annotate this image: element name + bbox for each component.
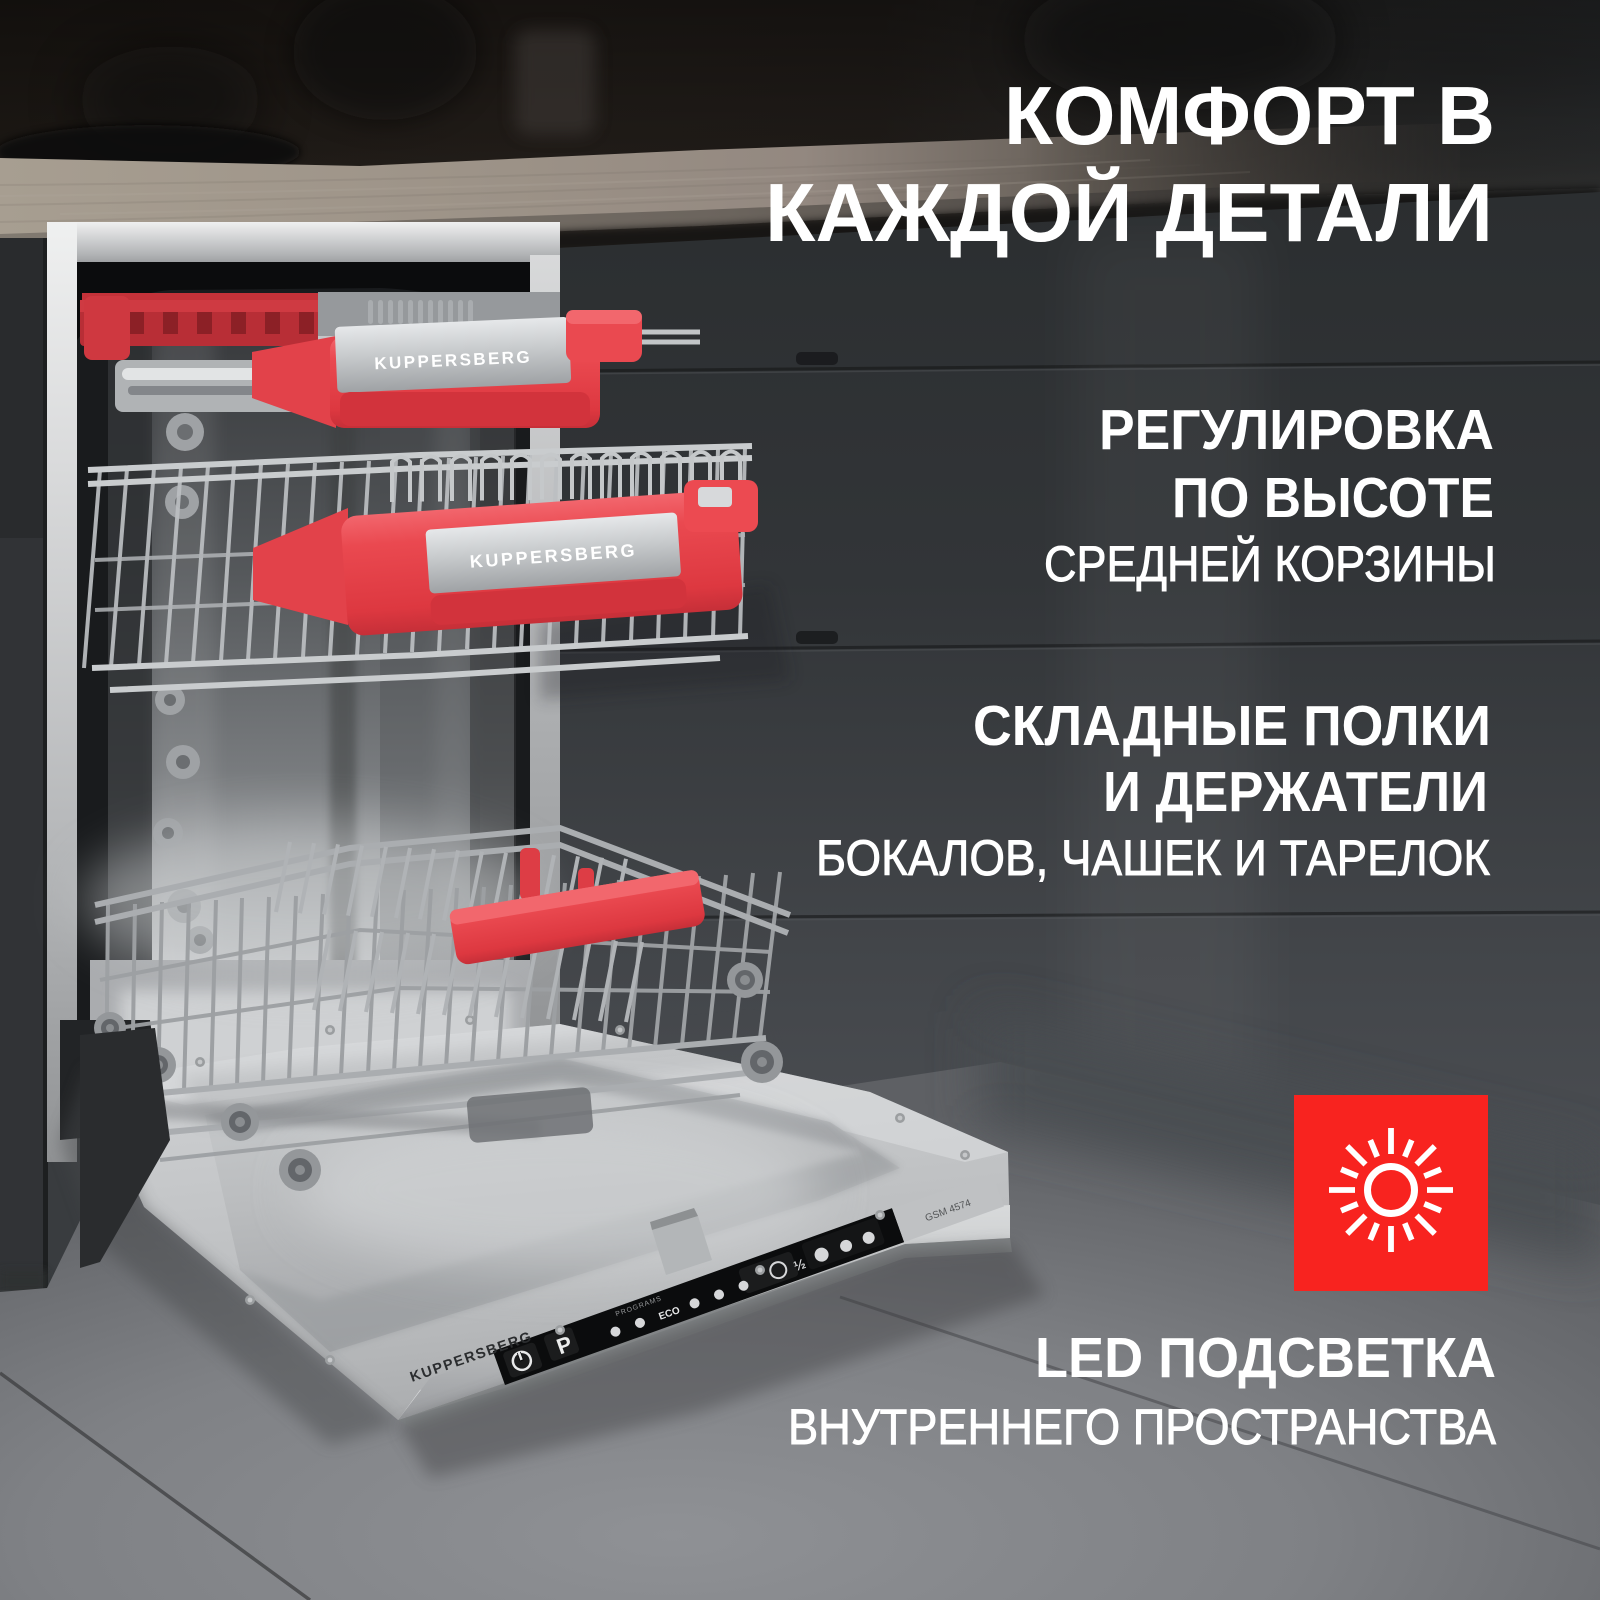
svg-text:СРЕДНЕЙ КОРЗИНЫ: СРЕДНЕЙ КОРЗИНЫ (1044, 535, 1496, 592)
svg-text:КОМФОРТ В: КОМФОРТ В (1004, 69, 1495, 162)
svg-text:РЕГУЛИРОВКА: РЕГУЛИРОВКА (1099, 398, 1494, 462)
svg-text:ВНУТРЕННЕГО ПРОСТРАНСТВА: ВНУТРЕННЕГО ПРОСТРАНСТВА (788, 1399, 1497, 1455)
svg-text:СКЛАДНЫЕ ПОЛКИ: СКЛАДНЫЕ ПОЛКИ (973, 694, 1491, 758)
svg-text:БОКАЛОВ, ЧАШЕК И ТАРЕЛОК: БОКАЛОВ, ЧАШЕК И ТАРЕЛОК (816, 830, 1490, 886)
svg-text:ПО ВЫСОТЕ: ПО ВЫСОТЕ (1172, 466, 1494, 530)
svg-text:LED ПОДСВЕТКА: LED ПОДСВЕТКА (1035, 1326, 1496, 1390)
svg-text:И ДЕРЖАТЕЛИ: И ДЕРЖАТЕЛИ (1103, 760, 1488, 824)
svg-text:КАЖДОЙ ДЕТАЛИ: КАЖДОЙ ДЕТАЛИ (765, 165, 1493, 259)
